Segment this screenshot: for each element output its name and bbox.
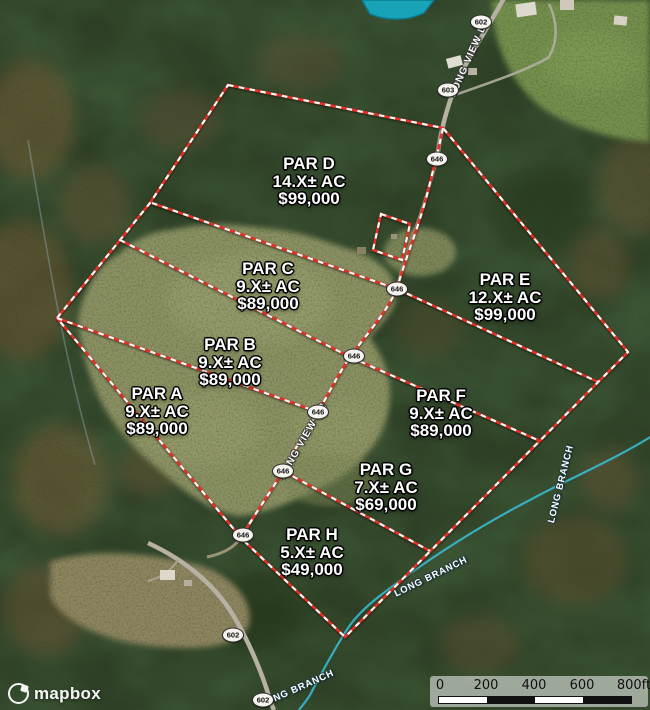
parcel-acres: 9.X± AC (409, 404, 473, 422)
parcel-price: $99,000 (469, 306, 542, 324)
parcel-name: PAR E (469, 271, 542, 289)
parcel-label-par-e: PAR E 12.X± AC $99,000 (469, 271, 542, 324)
parcel-label-par-f: PAR F 9.X± AC $89,000 (409, 387, 473, 440)
scale-bar-segments (438, 696, 632, 704)
route-shield-602: 602 (470, 15, 492, 30)
parcel-label-par-a: PAR A 9.X± AC $89,000 (125, 385, 189, 438)
route-shield-646: 646 (426, 152, 448, 167)
mapbox-icon (8, 683, 29, 704)
scale-tick-label: 0 (436, 678, 444, 693)
mapbox-logo[interactable]: mapbox (8, 683, 101, 704)
parcel-name: PAR G (354, 461, 418, 479)
scale-tick-label: 400 (522, 678, 547, 693)
route-shield-603: 603 (437, 83, 459, 98)
parcel-price: $89,000 (236, 295, 300, 313)
mapbox-wordmark: mapbox (34, 684, 101, 704)
route-shield-646: 646 (272, 464, 294, 479)
satellite-imagery (0, 0, 650, 710)
route-shield-646: 646 (343, 349, 365, 364)
scale-bar: 0 200 400 600 800ft (430, 676, 648, 707)
parcel-label-par-d: PAR D 14.X± AC $99,000 (273, 155, 346, 208)
parcel-acres: 12.X± AC (469, 288, 542, 306)
scale-tick-label: 200 (474, 678, 499, 693)
route-shield-602: 602 (222, 628, 244, 643)
parcel-acres: 9.X± AC (236, 277, 300, 295)
route-shield-646: 646 (307, 405, 329, 420)
parcel-price: $89,000 (198, 371, 262, 389)
parcel-price: $99,000 (273, 190, 346, 208)
parcel-price: $69,000 (354, 496, 418, 514)
route-shield-646: 646 (386, 282, 408, 297)
parcel-price: $89,000 (125, 420, 189, 438)
parcel-price: $49,000 (280, 561, 344, 579)
parcel-name: PAR B (198, 336, 262, 354)
parcel-name: PAR D (273, 155, 346, 173)
route-shield-602: 602 (252, 693, 274, 708)
parcel-name: PAR F (409, 387, 473, 405)
parcel-label-par-c: PAR C 9.X± AC $89,000 (236, 260, 300, 313)
parcel-acres: 5.X± AC (280, 543, 344, 561)
parcel-name: PAR H (280, 526, 344, 544)
parcel-acres: 7.X± AC (354, 478, 418, 496)
parcel-name: PAR C (236, 260, 300, 278)
parcel-acres: 14.X± AC (273, 172, 346, 190)
parcel-acres: 9.X± AC (198, 353, 262, 371)
parcel-name: PAR A (125, 385, 189, 403)
parcel-acres: 9.X± AC (125, 402, 189, 420)
parcel-price: $89,000 (409, 422, 473, 440)
parcel-label-par-b: PAR B 9.X± AC $89,000 (198, 336, 262, 389)
scale-tick-label: 600 (570, 678, 595, 693)
route-shield-646: 646 (232, 528, 254, 543)
parcel-label-par-g: PAR G 7.X± AC $69,000 (354, 461, 418, 514)
map-canvas[interactable]: PAR A 9.X± AC $89,000 PAR B 9.X± AC $89,… (0, 0, 650, 710)
parcel-label-par-h: PAR H 5.X± AC $49,000 (280, 526, 344, 579)
scale-tick-label: 800ft (617, 678, 650, 693)
